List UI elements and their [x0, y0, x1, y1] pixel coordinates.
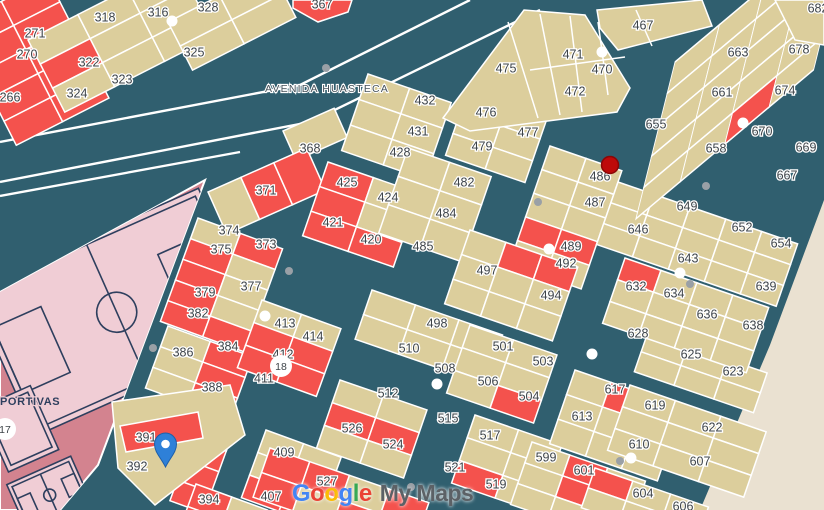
route-dot-gray[interactable]: [534, 198, 542, 206]
route-dot-gray[interactable]: [702, 182, 710, 190]
route-dot-white[interactable]: [626, 453, 637, 464]
parcel-number: 318: [95, 11, 116, 25]
parcel-number: 479: [472, 140, 493, 154]
parcel-number: 654: [771, 237, 792, 251]
route-dot-gray[interactable]: [285, 267, 293, 275]
parcel-number: 471: [563, 48, 584, 62]
parcel-number: 325: [184, 46, 205, 60]
parcel-number: 425: [337, 176, 358, 190]
parcel-number: 655: [646, 118, 667, 132]
parcel-number: 316: [148, 6, 169, 20]
parcel-number: 472: [565, 85, 586, 99]
parcel-number: 324: [67, 87, 88, 101]
map-canvas[interactable]: 3183163282712702663223233243253673683714…: [0, 0, 824, 510]
parcel-number: 497: [477, 264, 498, 278]
parcel-number: 607: [690, 455, 711, 469]
parcel-number: 604: [633, 487, 654, 501]
google-logo: Google: [292, 480, 372, 507]
parcel-number: 517: [480, 429, 501, 443]
parcel-number: 606: [673, 500, 694, 510]
parcel-number: 619: [645, 399, 666, 413]
parcel-number: 667: [777, 169, 798, 183]
parcel-number: 487: [585, 196, 606, 210]
parcel-number: 388: [202, 381, 223, 395]
route-dot-white[interactable]: [675, 268, 686, 279]
parcel-number: 375: [211, 243, 232, 257]
google-watermark: GoogleMy Maps: [292, 480, 473, 508]
parcel-number: 636: [697, 308, 718, 322]
parcel-number: 625: [681, 348, 702, 362]
parcel-number: 674: [775, 84, 796, 98]
route-dot-white[interactable]: [587, 349, 598, 360]
parcel-number: 599: [536, 451, 557, 465]
parcel-number: 431: [408, 125, 429, 139]
my-maps-label: My Maps: [380, 480, 474, 506]
parcel-number: 601: [574, 464, 595, 478]
parcel-number: 382: [188, 307, 209, 321]
parcel-number: 512: [378, 387, 399, 401]
parcel-number: 323: [112, 73, 133, 87]
parcel-number: 682: [808, 2, 824, 16]
parcel-number: 414: [303, 330, 324, 344]
parcel-number: 475: [496, 62, 517, 76]
parcel-number: 521: [445, 461, 466, 475]
parcel-number: 617: [605, 383, 626, 397]
route-dot-white[interactable]: [432, 379, 443, 390]
red-circle-marker[interactable]: [602, 157, 619, 174]
parcel-number: 613: [572, 410, 593, 424]
area-label: PORTIVAS: [0, 396, 60, 408]
parcel-number: 610: [629, 438, 650, 452]
circled-label: 17: [0, 424, 11, 436]
parcel-number: 476: [476, 106, 497, 120]
route-dot-gray[interactable]: [616, 457, 624, 465]
parcel-number: 432: [415, 94, 436, 108]
route-dot-white[interactable]: [167, 16, 178, 27]
parcel-number: 379: [195, 286, 216, 300]
parcel-number: 661: [712, 86, 733, 100]
parcel-number: 271: [25, 27, 46, 41]
street-label-avenida-huasteca: AVENIDA HUASTECA: [265, 83, 389, 95]
parcel-number: 503: [533, 355, 554, 369]
parcel-number: 494: [541, 289, 562, 303]
parcel-number: 428: [390, 146, 411, 160]
parcel-number: 485: [413, 240, 434, 254]
parcel-number: 484: [436, 207, 457, 221]
parcel-number: 413: [275, 317, 296, 331]
google-letter: G: [292, 480, 310, 507]
parcel-number: 386: [173, 346, 194, 360]
google-letter: g: [339, 480, 353, 507]
parcel-number: 646: [628, 223, 649, 237]
parcel-number: 394: [199, 493, 220, 507]
parcel-number: 409: [274, 446, 295, 460]
parcel-number: 524: [383, 438, 404, 452]
parcel-number: 391: [136, 431, 157, 445]
route-dot-gray[interactable]: [686, 280, 694, 288]
parcel-number: 373: [256, 238, 277, 252]
parcel-number: 411: [254, 372, 274, 386]
parcel-number: 421: [323, 216, 344, 230]
parcel-number: 467: [633, 19, 654, 33]
parcel-number: 392: [127, 460, 148, 474]
pin-hole: [161, 440, 170, 449]
parcel-number: 328: [198, 1, 219, 15]
parcel-number: 643: [678, 252, 699, 266]
parcel-number: 506: [478, 375, 499, 389]
parcel-number: 658: [706, 142, 727, 156]
parcel-number: 266: [0, 91, 20, 105]
route-dot-white[interactable]: [738, 118, 749, 129]
parcel-number: 519: [486, 478, 507, 492]
parcel-number: 420: [361, 233, 382, 247]
parcel-number: 678: [789, 43, 810, 57]
parcel-number: 670: [752, 125, 773, 139]
parcel-number: 424: [378, 191, 399, 205]
parcel-number: 407: [261, 490, 282, 504]
red-circle-marker-dot[interactable]: [602, 157, 619, 174]
circled-label: 18: [275, 361, 287, 373]
route-dot-gray[interactable]: [149, 344, 157, 352]
parcel-number: 628: [628, 327, 649, 341]
parcel-number: 526: [342, 422, 363, 436]
parcel-number: 492: [556, 257, 577, 271]
parcel-number: 489: [561, 240, 582, 254]
route-dot-white[interactable]: [597, 47, 608, 58]
parcel-number: 622: [702, 421, 723, 435]
my-maps-viewport[interactable]: 3183163282712702663223233243253673683714…: [0, 0, 824, 510]
parcel-number: 368: [300, 142, 321, 156]
parcel-number: 634: [664, 287, 685, 301]
parcel-number: 669: [796, 141, 817, 155]
google-letter: o: [310, 480, 324, 507]
parcel-number: 498: [427, 317, 448, 331]
parcel-number: 367: [312, 0, 333, 12]
parcel-number: 501: [493, 340, 514, 354]
google-letter: o: [324, 480, 338, 507]
parcel-number: 623: [723, 365, 744, 379]
route-dot-gray[interactable]: [322, 64, 330, 72]
google-letter: e: [359, 480, 372, 507]
route-dot-white[interactable]: [544, 244, 555, 255]
parcel-number: 649: [677, 200, 698, 214]
parcel-number: 322: [79, 56, 100, 70]
parcel-number: 270: [17, 48, 38, 62]
parcel-number: 384: [218, 340, 239, 354]
parcel-number: 482: [454, 176, 475, 190]
parcel-number: 638: [743, 319, 764, 333]
parcel-number: 371: [256, 184, 277, 198]
route-dot-white[interactable]: [260, 311, 271, 322]
parcel-number: 374: [219, 224, 240, 238]
parcel-number: 470: [592, 63, 613, 77]
parcel-number: 652: [732, 221, 753, 235]
parcel-number: 477: [518, 126, 539, 140]
parcel-number: 504: [519, 390, 540, 404]
parcel-number: 639: [756, 280, 777, 294]
parcel-number: 510: [399, 342, 420, 356]
parcel-number: 663: [728, 46, 749, 60]
parcel-number: 377: [241, 280, 262, 294]
parcel-number: 632: [626, 280, 647, 294]
parcel-number: 515: [438, 412, 459, 426]
parcel-number: 508: [435, 362, 456, 376]
